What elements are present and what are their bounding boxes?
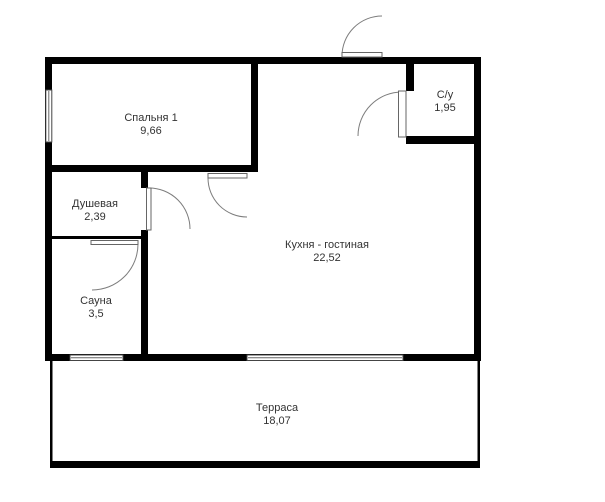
door-sauna <box>91 241 138 291</box>
wall-terrace-left <box>50 361 53 468</box>
room-area: 9,66 <box>124 125 177 138</box>
room-area: 22,52 <box>285 252 369 265</box>
room-name: Душевая <box>72 198 118 211</box>
door-entrance <box>342 16 382 57</box>
room-area: 1,95 <box>434 102 455 115</box>
wall-shower-right-upper <box>141 165 148 188</box>
room-area: 2,39 <box>72 211 118 224</box>
wall-terrace-right <box>478 361 481 468</box>
room-label-terrace: Терраса 18,07 <box>256 402 298 428</box>
wall-outer-top <box>45 57 481 64</box>
room-label-kitchen-living: Кухня - гостиная 22,52 <box>285 239 369 265</box>
door-bathroom <box>358 91 406 137</box>
door-bedroom <box>208 174 247 218</box>
room-area: 3,5 <box>80 308 112 321</box>
wall-bathroom-bottom <box>406 136 481 144</box>
window-kitchen <box>247 355 403 361</box>
floor-plan: Спальня 1 9,66 С/у 1,95 Душевая 2,39 Кух… <box>0 0 605 502</box>
wall-bathroom-left <box>406 57 414 91</box>
wall-bedroom-bottom <box>45 165 258 172</box>
wall-bedroom-right <box>251 57 258 172</box>
room-area: 18,07 <box>256 415 298 428</box>
room-label-bathroom: С/у 1,95 <box>434 89 455 115</box>
wall-outer-right <box>474 57 481 361</box>
room-name: С/у <box>434 89 455 102</box>
wall-shower-sauna-divider <box>52 236 141 239</box>
room-name: Кухня - гостиная <box>285 239 369 252</box>
door-shower <box>147 188 191 230</box>
window-bedroom <box>46 90 52 142</box>
room-name: Спальня 1 <box>124 112 177 125</box>
wall-sauna-right <box>141 230 148 361</box>
room-label-sauna: Сауна 3,5 <box>80 295 112 321</box>
window-sauna <box>70 355 123 361</box>
room-name: Сауна <box>80 295 112 308</box>
room-label-shower: Душевая 2,39 <box>72 198 118 224</box>
room-name: Терраса <box>256 402 298 415</box>
room-label-bedroom-1: Спальня 1 9,66 <box>124 112 177 138</box>
wall-terrace-bottom <box>50 461 480 468</box>
